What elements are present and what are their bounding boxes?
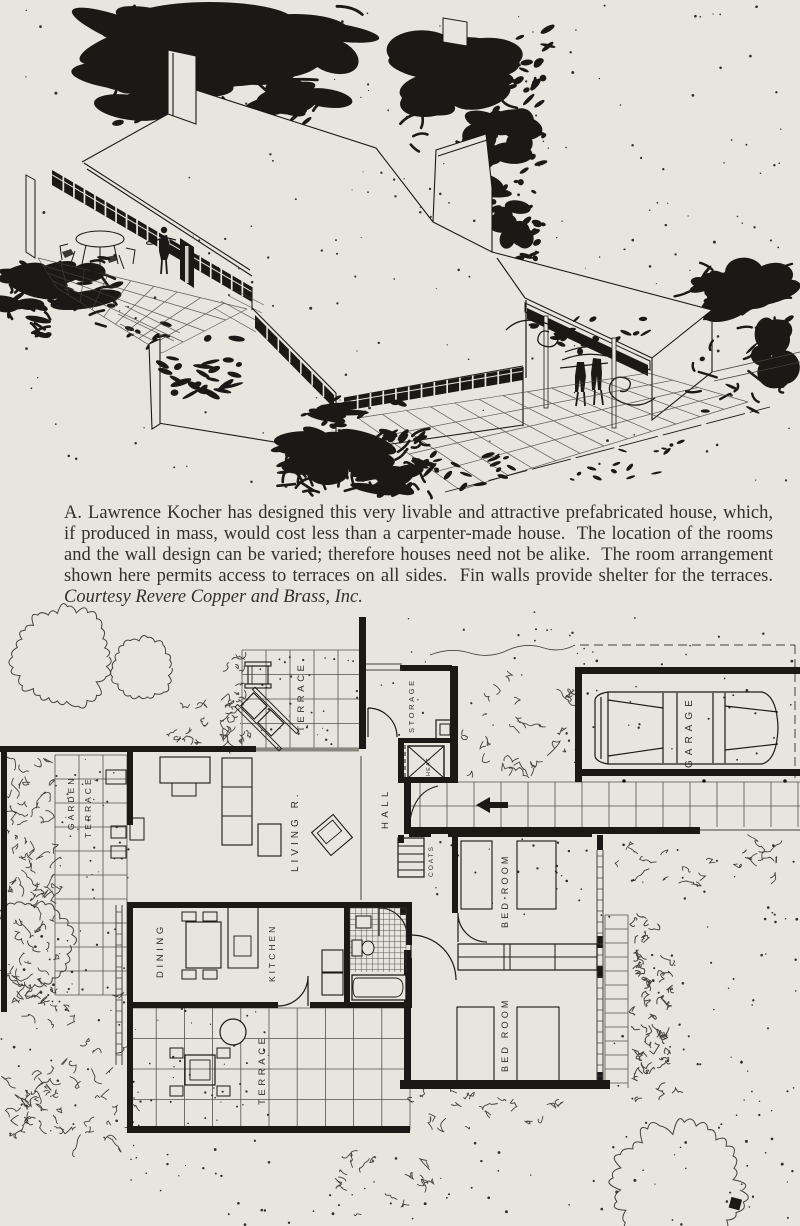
svg-text:STORAGE: STORAGE — [407, 678, 416, 733]
svg-text:KITCHEN: KITCHEN — [267, 924, 277, 982]
svg-text:DINING: DINING — [155, 923, 166, 978]
svg-text:LIVING R.: LIVING R. — [290, 790, 301, 872]
svg-text:BED ROOM: BED ROOM — [500, 853, 510, 928]
svg-text:GARAGE: GARAGE — [684, 695, 695, 768]
svg-text:HEAT: HEAT — [426, 757, 432, 776]
svg-text:HALL: HALL — [380, 787, 391, 829]
svg-text:TERRACE: TERRACE — [83, 776, 93, 838]
svg-text:COATS: COATS — [428, 845, 435, 877]
svg-text:GARDEN: GARDEN — [66, 776, 76, 830]
svg-text:BED ROOM: BED ROOM — [500, 997, 510, 1072]
svg-text:TERRACE: TERRACE — [257, 1034, 268, 1105]
svg-text:TERRACE: TERRACE — [296, 661, 307, 732]
